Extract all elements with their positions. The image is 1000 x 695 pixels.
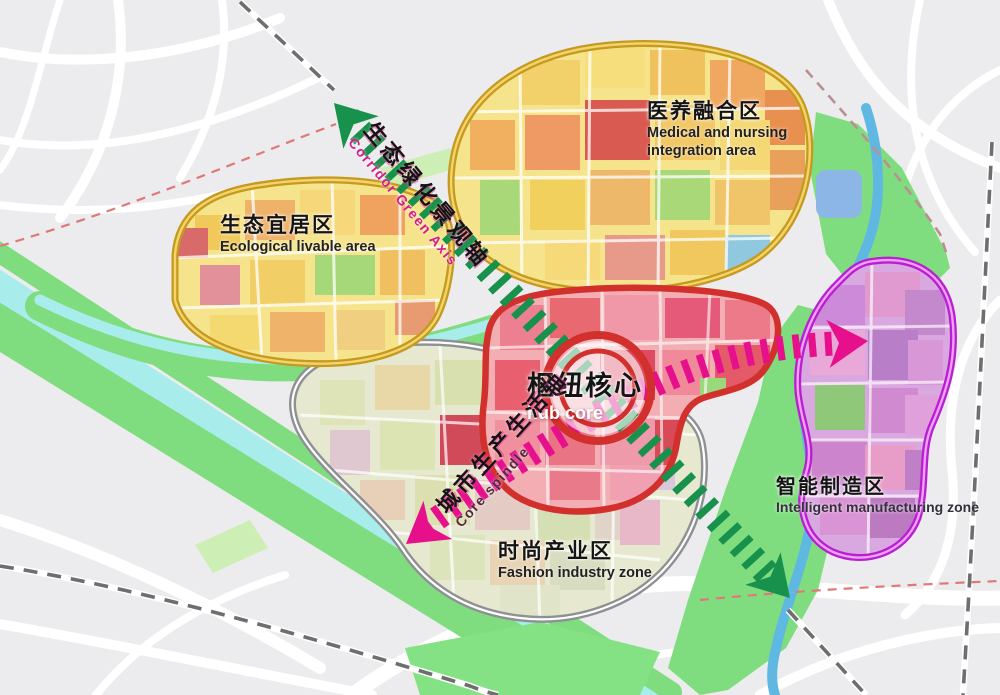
map-canvas [0, 0, 1000, 695]
planning-map: 生态宜居区 Ecological livable area 医养融合区 Medi… [0, 0, 1000, 695]
lake [816, 170, 862, 218]
hub-ring [545, 335, 651, 441]
